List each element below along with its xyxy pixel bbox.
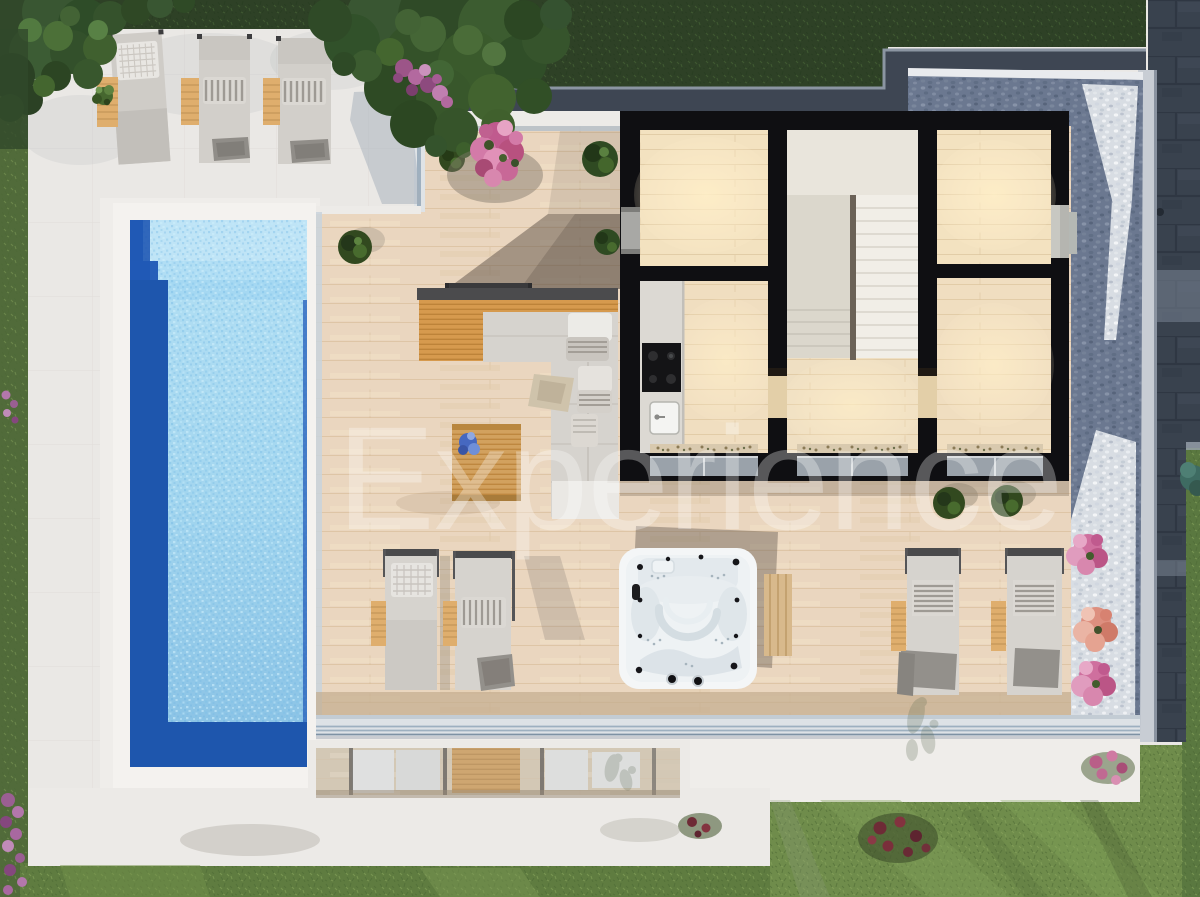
svg-text:Experience: Experience	[337, 397, 1062, 561]
